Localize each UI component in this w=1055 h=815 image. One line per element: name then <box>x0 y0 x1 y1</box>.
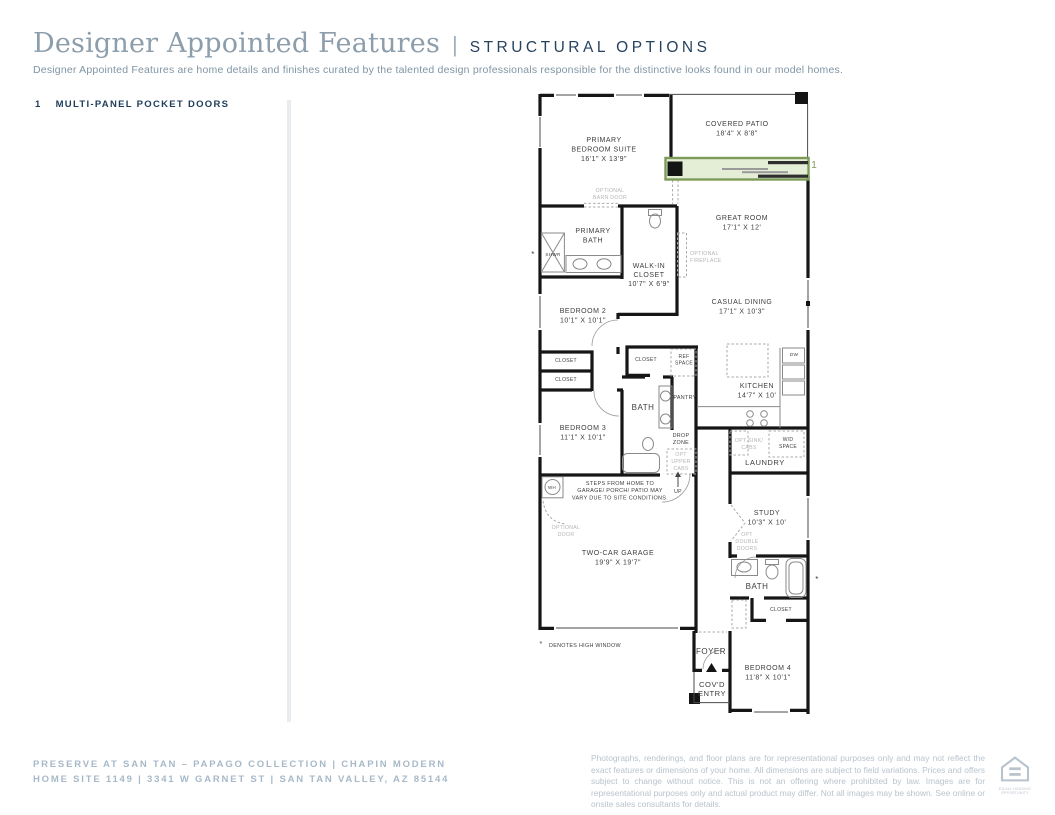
denotes-high-window-label: DENOTES HIGH WINDOW <box>549 643 621 649</box>
study-label: STUDY10'3" X 10' <box>748 510 787 527</box>
bedroom4-closet-label: CLOSET <box>770 607 792 613</box>
study-bath-label: BATH <box>746 582 769 591</box>
covd-entry-label: COV'DENTRY <box>698 680 726 698</box>
opt-double-doors-label: OPTDOUBLEDOORS <box>735 532 758 552</box>
up-label: UP <box>674 489 682 495</box>
drop-zone-label: DROPZONE <box>673 433 690 446</box>
page-title: Designer Appointed Features <box>33 28 440 59</box>
walls <box>540 94 809 714</box>
hall-bath-fixtures <box>623 386 673 473</box>
pantry-label: PANTRY <box>673 395 696 401</box>
community-line: PRESERVE AT SAN TAN – PAPAGO COLLECTION … <box>33 757 449 772</box>
address-line: HOME SITE 1149 | 3341 W GARNET ST | SAN … <box>33 772 449 787</box>
laundry-label: LAUNDRY <box>745 458 785 467</box>
shower-label: SHWR <box>545 252 561 257</box>
feature-number: 1 <box>35 99 42 110</box>
feature-item-1: 1 MULTI-PANEL POCKET DOORS <box>35 99 229 110</box>
pocket-door-highlight <box>666 158 809 180</box>
covered-patio-label: COVERED PATIO18'4" X 8'8" <box>705 121 768 138</box>
great-room-label: GREAT ROOM17'1" X 12' <box>716 215 768 232</box>
footer-brand: PRESERVE AT SAN TAN – PAPAGO COLLECTION … <box>33 757 449 787</box>
legal-disclaimer: Photographs, renderings, and floor plans… <box>591 753 985 811</box>
two-car-garage-label: TWO-CAR GARAGE19'9" X 19'7" <box>582 550 654 567</box>
bedroom2-closet-upper-label: CLOSET <box>555 358 577 364</box>
study-bath-fixtures <box>732 559 807 598</box>
denotes-asterisk: * <box>539 641 542 648</box>
optional-door-label: OPTIONALDOOR <box>552 525 581 538</box>
bedroom-4-label: BEDROOM 411'8" X 10'1" <box>745 665 792 682</box>
hall-closet-label: CLOSET <box>635 357 657 363</box>
page-description: Designer Appointed Features are home det… <box>33 64 843 76</box>
equal-housing-caption-2: OPPORTUNITY <box>996 791 1034 795</box>
steps-note-label: STEPS FROM HOME TOGARAGE/ PORCH/ PATIO M… <box>572 481 668 501</box>
primary-bedroom-suite-label: PRIMARYBEDROOM SUITE16'1" X 13'9" <box>571 137 636 163</box>
high-window-asterisk-shower: * <box>531 250 534 259</box>
floor-plan: PRIMARYBEDROOM SUITE16'1" X 13'9"COVERED… <box>528 88 820 738</box>
wd-space-label: W/DSPACE <box>779 437 797 450</box>
optional-barn-door-label: OPTIONALBARN DOOR <box>593 188 627 201</box>
vertical-divider <box>287 100 291 722</box>
title-divider: | <box>452 32 458 58</box>
bedroom-3-label: BEDROOM 311'1" X 10'1" <box>560 425 607 442</box>
bedroom-2-label: BEDROOM 210'1" X 10'1" <box>560 308 607 325</box>
bedroom2-closet-lower-label: CLOSET <box>555 377 577 383</box>
casual-dining-label: CASUAL DINING17'1" X 10'3" <box>712 299 773 316</box>
structural-options-label: STRUCTURAL OPTIONS <box>470 39 711 57</box>
window-openings <box>536 91 812 716</box>
water-heater-label: WH <box>548 485 556 490</box>
foyer-label: FOYER <box>696 647 726 656</box>
kitchen-label: KITCHEN14'7" X 10' <box>738 383 777 400</box>
opt-upper-cabs-label: OPTUPPERCABS <box>671 452 690 472</box>
walk-in-closet-label: WALK-INCLOSET10'7" X 6'9" <box>628 263 670 288</box>
primary-bath-label: PRIMARYBATH <box>575 228 610 245</box>
optional-fireplace-label: OPTIONALFIREPLACE <box>690 251 722 264</box>
equal-housing-icon <box>1000 756 1030 782</box>
hall-bath-label: BATH <box>632 403 655 412</box>
high-window-asterisk-bath: * <box>815 575 818 584</box>
pocket-door-callout: 1 <box>811 160 817 171</box>
opt-sink-cabs-label: OPT SINK/CABS <box>735 438 764 451</box>
ref-space-label: REFSPACE <box>675 354 693 367</box>
equal-housing-logo: EQUAL HOUSING OPPORTUNITY <box>996 756 1034 796</box>
designer-features-page: Designer Appointed Features | STRUCTURAL… <box>0 0 1055 815</box>
page-header: Designer Appointed Features | STRUCTURAL… <box>33 28 710 59</box>
dishwasher-label: DW <box>790 352 799 358</box>
feature-label: MULTI-PANEL POCKET DOORS <box>56 99 230 110</box>
